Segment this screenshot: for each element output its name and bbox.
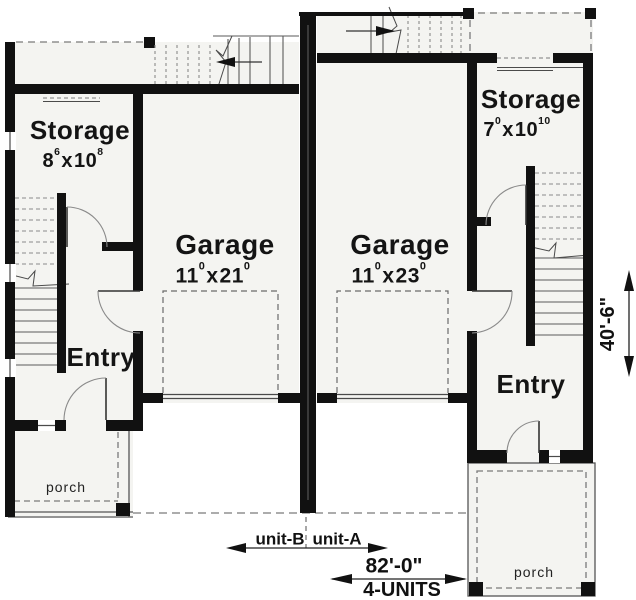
wall-stair-unit-a [526, 166, 535, 346]
overall-width-units-label: 4-UNITS [363, 580, 441, 600]
wall-garage-a-east-lower [467, 331, 477, 463]
room-label-storage-unit-a: Storage [481, 86, 581, 112]
room-label-storage-unit-b: Storage [30, 117, 130, 143]
depth-arrow-top [624, 270, 634, 291]
unit-b-arrow [226, 543, 246, 553]
wall-stair-unit-b [57, 193, 66, 373]
wall-garage-a-front-left [317, 393, 337, 403]
unit-b-tag: unit-B [255, 531, 304, 548]
wall-front-unit-b [5, 84, 299, 94]
overall-depth-dim: 40'-6" [598, 297, 618, 351]
porch-a-post-right [581, 582, 595, 596]
wall-storage-b-east [133, 94, 143, 250]
unit-a-arrow [368, 543, 388, 553]
wall-entry-b-south-1 [5, 420, 38, 431]
wall-entry-a-south-2 [539, 450, 549, 463]
porch-b-post [116, 503, 130, 516]
overall-width-dim: 82'-0" [366, 556, 423, 577]
roof-edge-unit-a [299, 12, 466, 16]
room-dim-garage-unit-a: 110x230 [352, 266, 427, 287]
room-label-entry-unit-b: Entry [67, 344, 136, 370]
unit-a-tag: unit-A [312, 531, 361, 548]
porch-a-post-left [469, 582, 483, 596]
wall-stub-storage-a [477, 217, 491, 226]
wall-front-unit-a-right [553, 53, 593, 63]
room-label-porch-unit-a: porch [514, 565, 554, 579]
wall-garage-b-front-left [133, 393, 163, 403]
wall-entry-a-south-3 [560, 450, 593, 463]
room-label-garage-unit-a: Garage [350, 231, 450, 259]
wall-entry-b-south-3 [106, 420, 143, 431]
wall-outer-right [583, 63, 593, 463]
wall-garage-b-front-right [278, 393, 300, 403]
wall-entry-b-east-upper [133, 250, 143, 291]
room-dim-garage-unit-b: 110x210 [176, 266, 251, 287]
depth-arrow-bottom [624, 356, 634, 377]
wall-entry-b-south-2 [55, 420, 66, 431]
room-dim-storage-unit-a: 70x1010 [483, 120, 550, 140]
room-label-garage-unit-b: Garage [175, 231, 275, 259]
width-arrow-right [445, 574, 467, 584]
room-dim-storage-unit-b: 86x108 [42, 151, 103, 171]
floor-porch-unit-b [8, 430, 133, 516]
width-arrow-left [330, 574, 352, 584]
room-label-porch-unit-b: porch [46, 480, 86, 494]
wall-garage-a-east-upper [467, 53, 477, 291]
room-label-entry-unit-a: Entry [497, 371, 566, 397]
floor-plan-page: Storage 86x108 Garage 110x210 Entry porc… [0, 0, 636, 600]
wall-entry-a-south-1 [467, 450, 507, 463]
